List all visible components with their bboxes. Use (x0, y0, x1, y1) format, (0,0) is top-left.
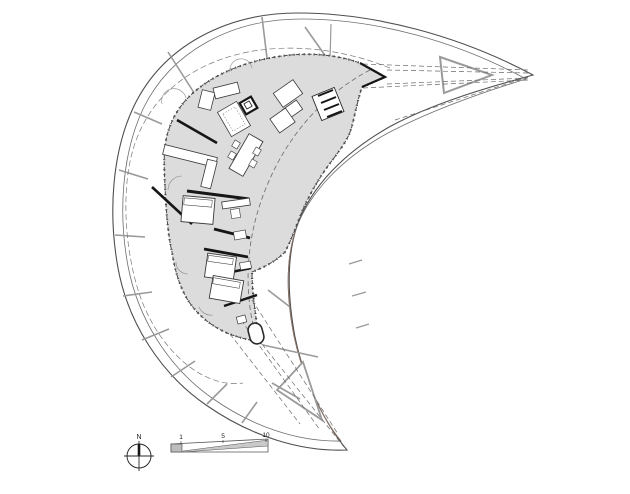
architectural-floor-plan: N1510 (0, 0, 630, 494)
scale-label-10: 10 (262, 432, 270, 439)
side-table (233, 230, 246, 240)
scale-label-5: 5 (221, 433, 225, 440)
scale-bar-end-block (171, 444, 182, 452)
structural-fin (356, 324, 369, 328)
north-label: N (136, 434, 141, 441)
side-table (239, 261, 251, 270)
structural-fin (349, 260, 362, 264)
structural-fin (352, 292, 366, 296)
desk-chair (230, 208, 240, 218)
scale-label-1: 1 (179, 434, 183, 441)
layer-annotations: N1510 (124, 432, 270, 471)
floor-plan-drawing: N1510 (0, 0, 630, 494)
